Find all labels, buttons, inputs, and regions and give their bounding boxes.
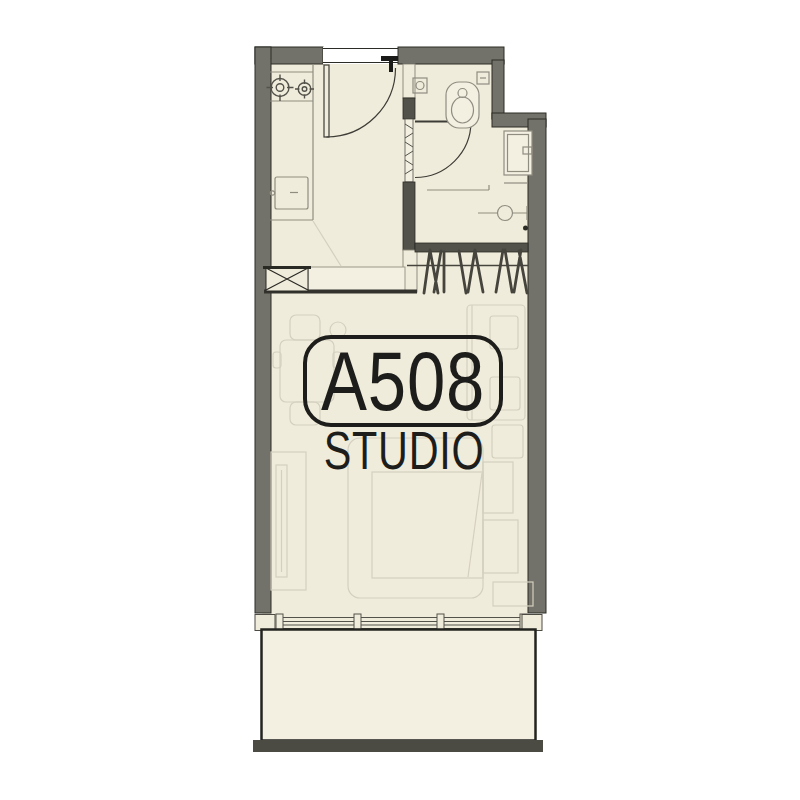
wall-bath-right-upper	[492, 60, 504, 119]
service-shaft-icon	[263, 267, 311, 291]
unit-number: A508	[321, 339, 485, 423]
hall-beam	[308, 267, 405, 291]
balcony-edge-bar	[253, 740, 543, 752]
vanity-sink-icon	[504, 131, 532, 183]
unit-number-badge: A508	[303, 335, 503, 427]
window-end-block-right	[522, 615, 542, 631]
door-frame-mark-1	[381, 56, 398, 61]
balcony-icon	[253, 630, 543, 753]
unit-type-wrap: STUDIO	[262, 424, 546, 477]
door-frame-mark-2	[389, 61, 393, 72]
floor-plan-canvas: A508 STUDIO	[0, 0, 800, 800]
partition-dark-lower	[403, 182, 415, 250]
wall-left	[255, 47, 271, 613]
window-end-block-left	[255, 615, 275, 631]
entry-opening	[323, 47, 398, 64]
partition-dark-upper	[403, 98, 415, 119]
entry-door-leaf	[324, 65, 329, 137]
bath-wardrobe-wall	[415, 243, 528, 252]
wall-top-right	[398, 47, 504, 64]
unit-type: STUDIO	[324, 424, 485, 477]
wall-right	[528, 119, 546, 613]
toilet-icon	[446, 82, 479, 128]
balcony-floor	[262, 630, 536, 741]
